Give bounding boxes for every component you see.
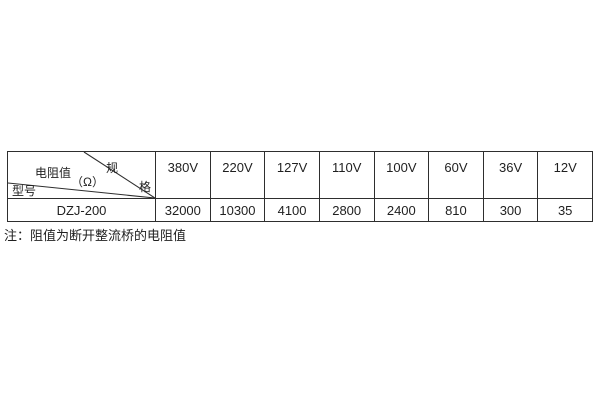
- voltage-header-380v: 380V: [156, 152, 211, 199]
- voltage-header-100v: 100V: [375, 152, 430, 199]
- note-text: 注：阻值为断开整流桥的电阻值: [4, 229, 186, 244]
- voltage-header-127v: 127V: [265, 152, 320, 199]
- voltage-header-220v: 220V: [211, 152, 266, 199]
- voltage-header-60v: 60V: [429, 152, 484, 199]
- resistance-value-cell: 4100: [265, 199, 320, 222]
- resistance-value-cell: 300: [484, 199, 539, 222]
- resistance-axis-label: 电阻值: [35, 167, 71, 179]
- resistance-value-cell: 32000: [156, 199, 211, 222]
- diagonal-header-cell: 规 格 电阻值 （Ω） 型号: [8, 152, 156, 199]
- resistance-value-cell: 2800: [320, 199, 375, 222]
- spec-label-bottom-char: 格: [139, 181, 151, 193]
- resistance-value-cell: 35: [538, 199, 593, 222]
- page: 规 格 电阻值 （Ω） 型号 380V 220V 127V 110V 100V …: [0, 0, 600, 400]
- voltage-header-12v: 12V: [538, 152, 593, 199]
- resistance-value-cell: 2400: [375, 199, 430, 222]
- resistance-spec-table: 规 格 电阻值 （Ω） 型号 380V 220V 127V 110V 100V …: [7, 151, 593, 222]
- model-cell: DZJ-200: [8, 199, 156, 222]
- voltage-header-110v: 110V: [320, 152, 375, 199]
- model-axis-label: 型号: [12, 185, 36, 197]
- resistance-unit-label: （Ω）: [71, 176, 104, 188]
- resistance-value-cell: 810: [429, 199, 484, 222]
- spec-label-top-char: 规: [106, 162, 118, 174]
- resistance-value-cell: 10300: [211, 199, 266, 222]
- voltage-header-36v: 36V: [484, 152, 539, 199]
